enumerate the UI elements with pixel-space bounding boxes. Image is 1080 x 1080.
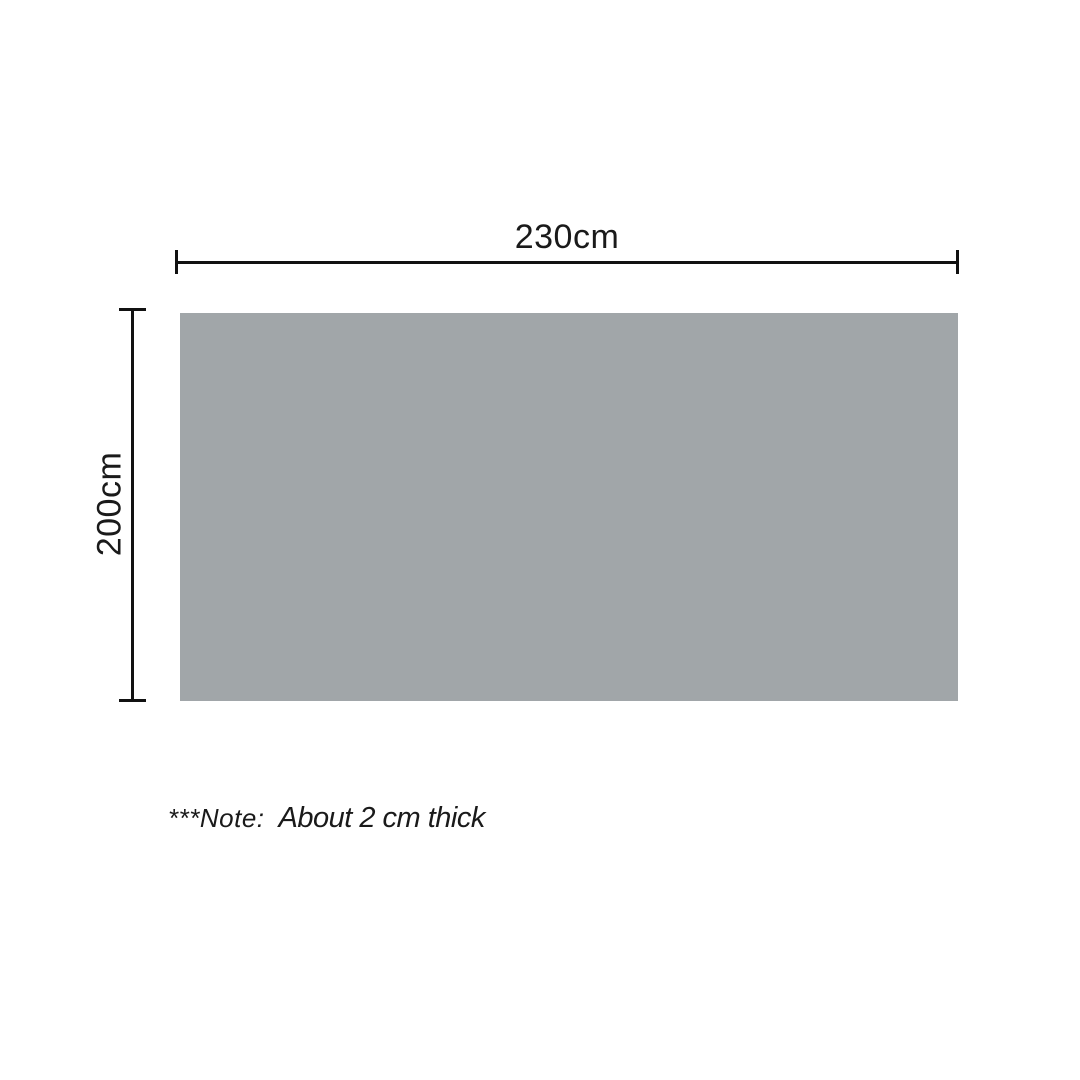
- thickness-note-prefix: ***Note:: [168, 803, 265, 833]
- height-dim-line: [131, 308, 134, 702]
- product-panel: [180, 313, 958, 701]
- thickness-note: ***Note:About 2 cm thick: [168, 802, 485, 835]
- height-dim-bottom-tick: [119, 699, 146, 702]
- width-dim-right-tick: [956, 250, 959, 274]
- width-dim-line: [175, 261, 959, 264]
- diagram-canvas: 230cm 200cm ***Note:About 2 cm thick: [0, 0, 1080, 1080]
- height-dimension-line: [119, 308, 146, 702]
- thickness-note-text: About 2 cm thick: [279, 802, 485, 834]
- width-dimension-line: [175, 250, 959, 274]
